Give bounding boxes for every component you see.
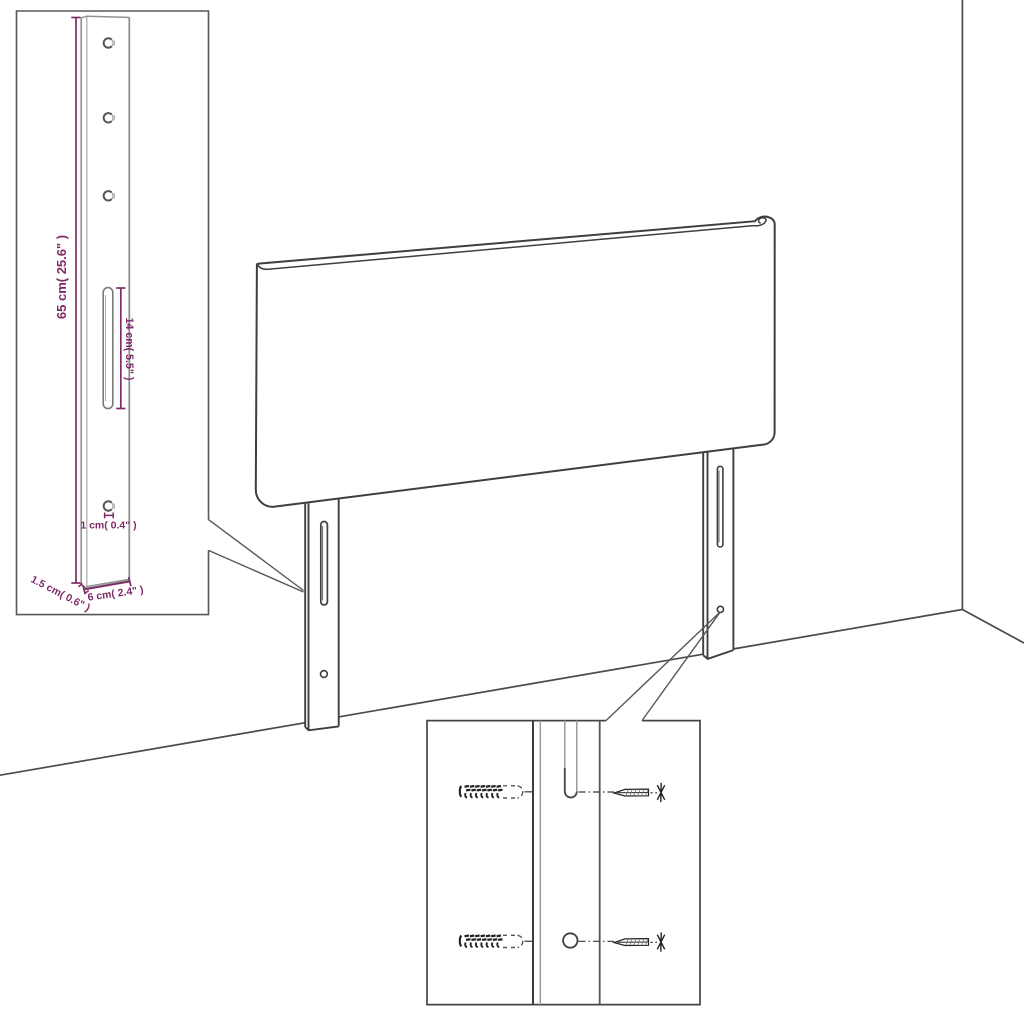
svg-text:65 cm( 25.6" ): 65 cm( 25.6" ) bbox=[54, 235, 69, 319]
svg-text:14 cm( 5.5" ): 14 cm( 5.5" ) bbox=[123, 318, 135, 381]
svg-text:1 cm( 0.4" ): 1 cm( 0.4" ) bbox=[80, 520, 136, 532]
svg-text:1.5 cm( 0.6" ): 1.5 cm( 0.6" ) bbox=[29, 573, 92, 614]
